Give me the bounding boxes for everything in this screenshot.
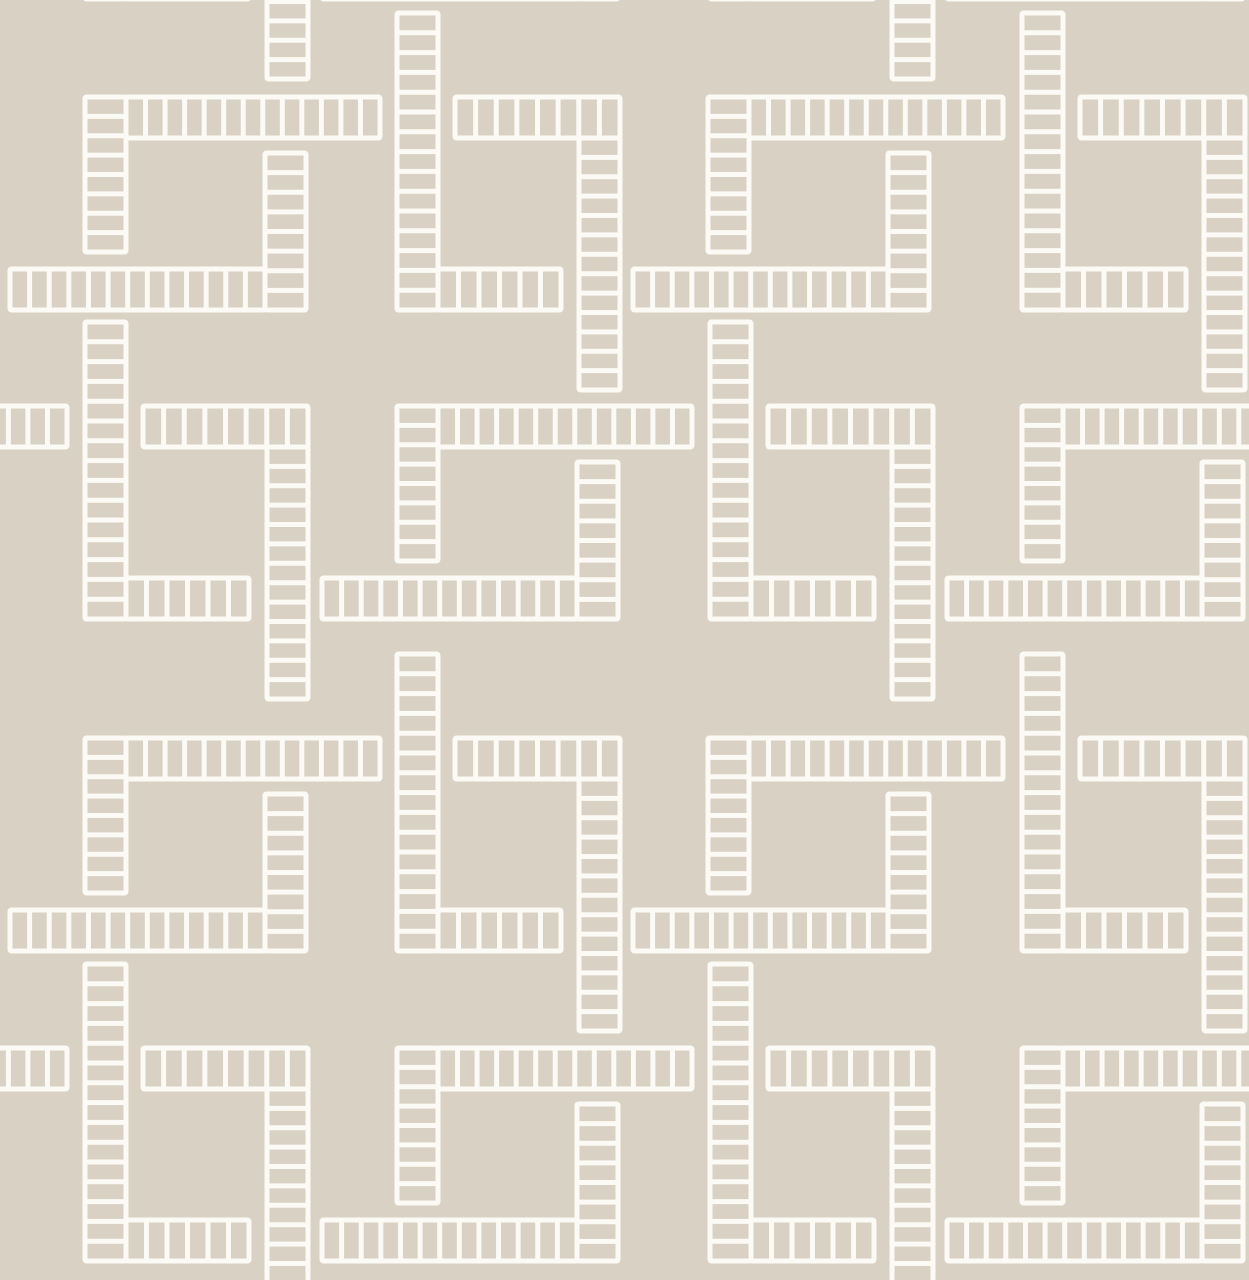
l-piece-r2-0-bottom-arm <box>126 578 249 619</box>
l-piece-r3-1-bottom-arm <box>1063 910 1186 951</box>
geometric-wallpaper-pattern <box>0 0 1249 1280</box>
l-piece-r3-0-bottom-arm <box>438 910 561 951</box>
l-piece-r4-1-bottom-arm <box>751 1220 874 1261</box>
l-piece-r1-1-bottom-arm <box>1063 269 1186 310</box>
l-piece-r4-0-bottom-arm <box>126 1220 249 1261</box>
l-piece-r1-0-bottom-arm <box>438 269 561 310</box>
l-piece-r2-1-bottom-arm <box>751 578 874 619</box>
pattern-svg <box>0 0 1249 1280</box>
